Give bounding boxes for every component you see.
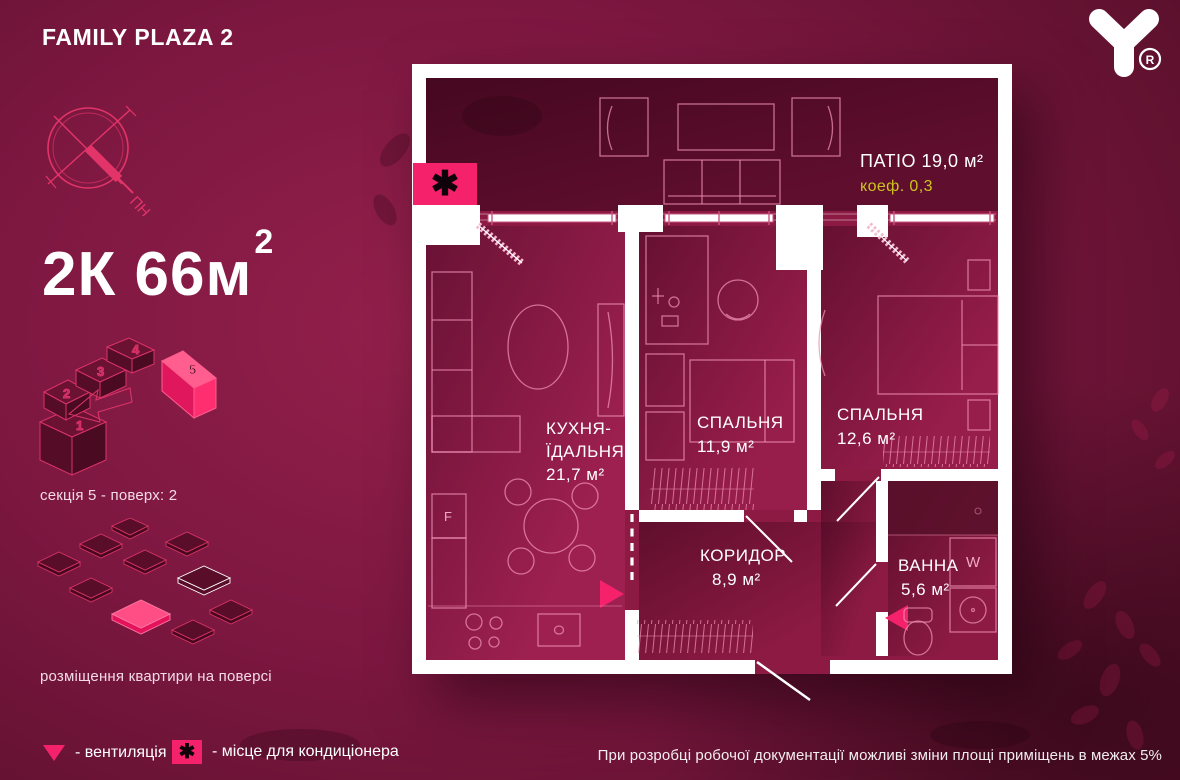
corridor-label: КОРИДОР — [700, 546, 786, 565]
patio-coef-label: коеф. 0,3 — [860, 178, 933, 195]
brand-logo[interactable]: R — [1084, 6, 1164, 78]
bedroom1-area: 11,9 м² — [697, 437, 754, 456]
disclaimer: При розробці робочої документації можлив… — [598, 747, 1162, 764]
svg-text:4: 4 — [132, 342, 140, 357]
floorplan: ПАТІО 19,0 м² коеф. 0,3 — [412, 64, 1012, 724]
placement-tile — [70, 578, 112, 602]
placement-tile — [112, 518, 148, 539]
kitchen-area: 21,7 м² — [546, 465, 605, 484]
legend-ventilation-label: - вентиляція — [75, 744, 166, 762]
bedroom2-label: СПАЛЬНЯ — [837, 405, 924, 424]
placement-tile — [166, 532, 208, 556]
section-floor-info: секція 5 - поверх: 2 — [40, 487, 177, 504]
apartment-headline: 2К 66м2 — [42, 244, 272, 306]
headline-main: 2К 66м — [42, 240, 252, 309]
section-block-1: 1 — [40, 407, 106, 475]
compass: ПН — [36, 96, 156, 216]
logo-y-icon — [1099, 19, 1149, 67]
kitchen-label-1: КУХНЯ- — [546, 419, 611, 438]
svg-text:2: 2 — [63, 386, 70, 401]
entrance-opening — [755, 660, 830, 674]
corridor-area: 8,9 м² — [712, 570, 761, 589]
compass-needle — [88, 148, 119, 179]
headline-sup: 2 — [254, 223, 274, 261]
ventilation-triangle-icon — [43, 745, 65, 761]
bedroom2-area: 12,6 м² — [837, 429, 896, 448]
kitchen-label-2: ЇДАЛЬНЯ — [546, 442, 624, 461]
page: { "header": { "title": "FAMILY PLAZA 2" … — [0, 0, 1180, 780]
building-sections-diagram: 1 2 3 4 5 — [34, 330, 269, 495]
section-block-5-highlighted: 5 — [162, 351, 216, 418]
bedroom1-label: СПАЛЬНЯ — [697, 413, 784, 432]
patio-label: ПАТІО 19,0 м² — [860, 151, 983, 171]
bathroom-area: 5,6 м² — [901, 580, 950, 599]
placement-tile — [124, 550, 166, 574]
washer-marker: W — [966, 554, 981, 571]
svg-text:5: 5 — [189, 362, 196, 377]
placement-tile — [172, 620, 214, 644]
fridge-marker: F — [444, 509, 452, 524]
ac-spot-symbol: ✱ — [431, 165, 460, 203]
placement-tile — [80, 534, 122, 558]
placement-tile — [210, 600, 252, 624]
patio-leaf-shadow — [462, 96, 542, 136]
bathtub — [888, 481, 998, 535]
registered-mark-letter: R — [1146, 53, 1155, 67]
svg-text:1: 1 — [76, 418, 83, 433]
placement-tile-highlighted — [112, 600, 170, 634]
legend-ventilation: - вентиляція — [43, 744, 166, 762]
compass-north-label: ПН — [126, 193, 153, 216]
legend-ac-label: - місце для кондиціонера — [212, 743, 399, 761]
placement-tile-outlined — [178, 566, 230, 595]
bathroom-label: ВАННА — [898, 556, 959, 575]
legend-ac: ✱ - місце для кондиціонера — [172, 740, 399, 764]
svg-text:3: 3 — [97, 364, 104, 379]
placement-tile — [38, 552, 80, 576]
placement-caption: розміщення квартири на поверсі — [40, 668, 272, 685]
ac-symbol-icon: ✱ — [172, 740, 202, 764]
floor-placement-diagram — [28, 518, 268, 668]
page-title: FAMILY PLAZA 2 — [42, 24, 234, 51]
